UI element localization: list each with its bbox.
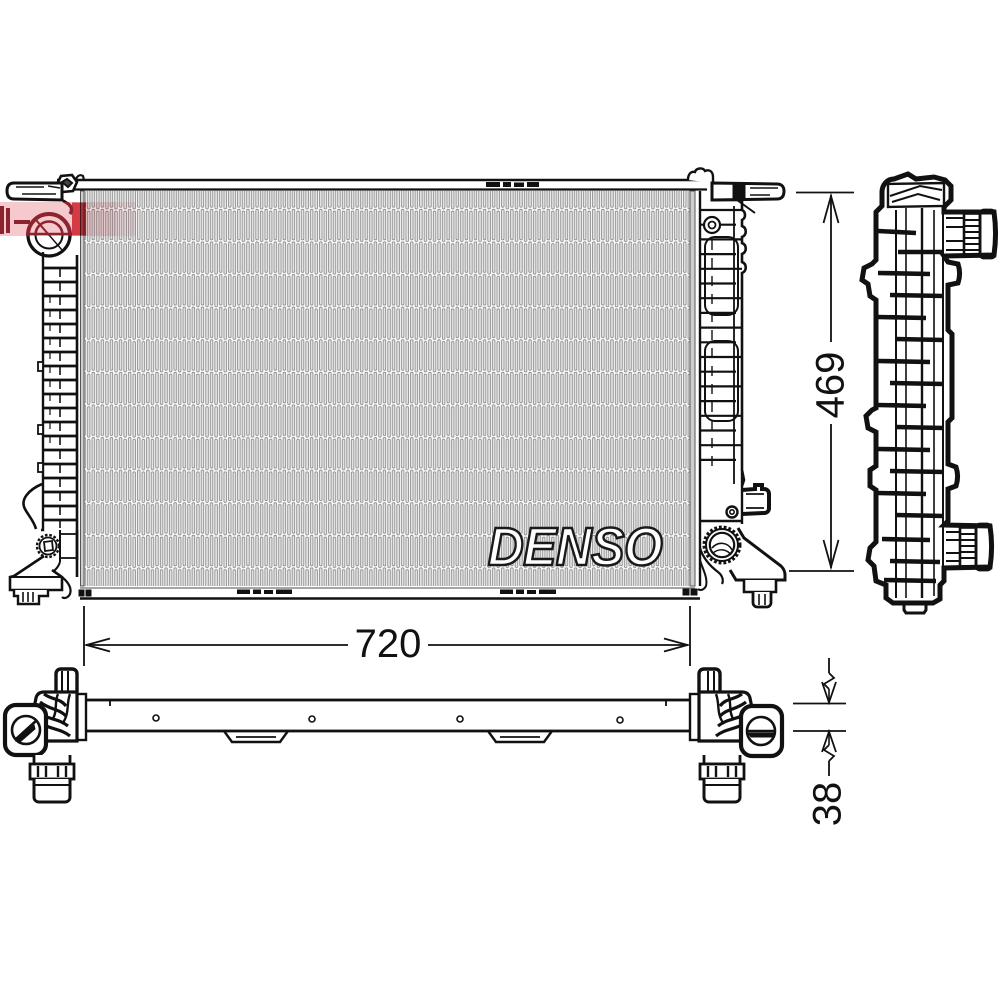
svg-text:469: 469: [809, 352, 853, 419]
svg-text:38: 38: [806, 782, 850, 827]
svg-text:DENSO: DENSO: [488, 516, 662, 576]
svg-text:720: 720: [355, 622, 422, 666]
